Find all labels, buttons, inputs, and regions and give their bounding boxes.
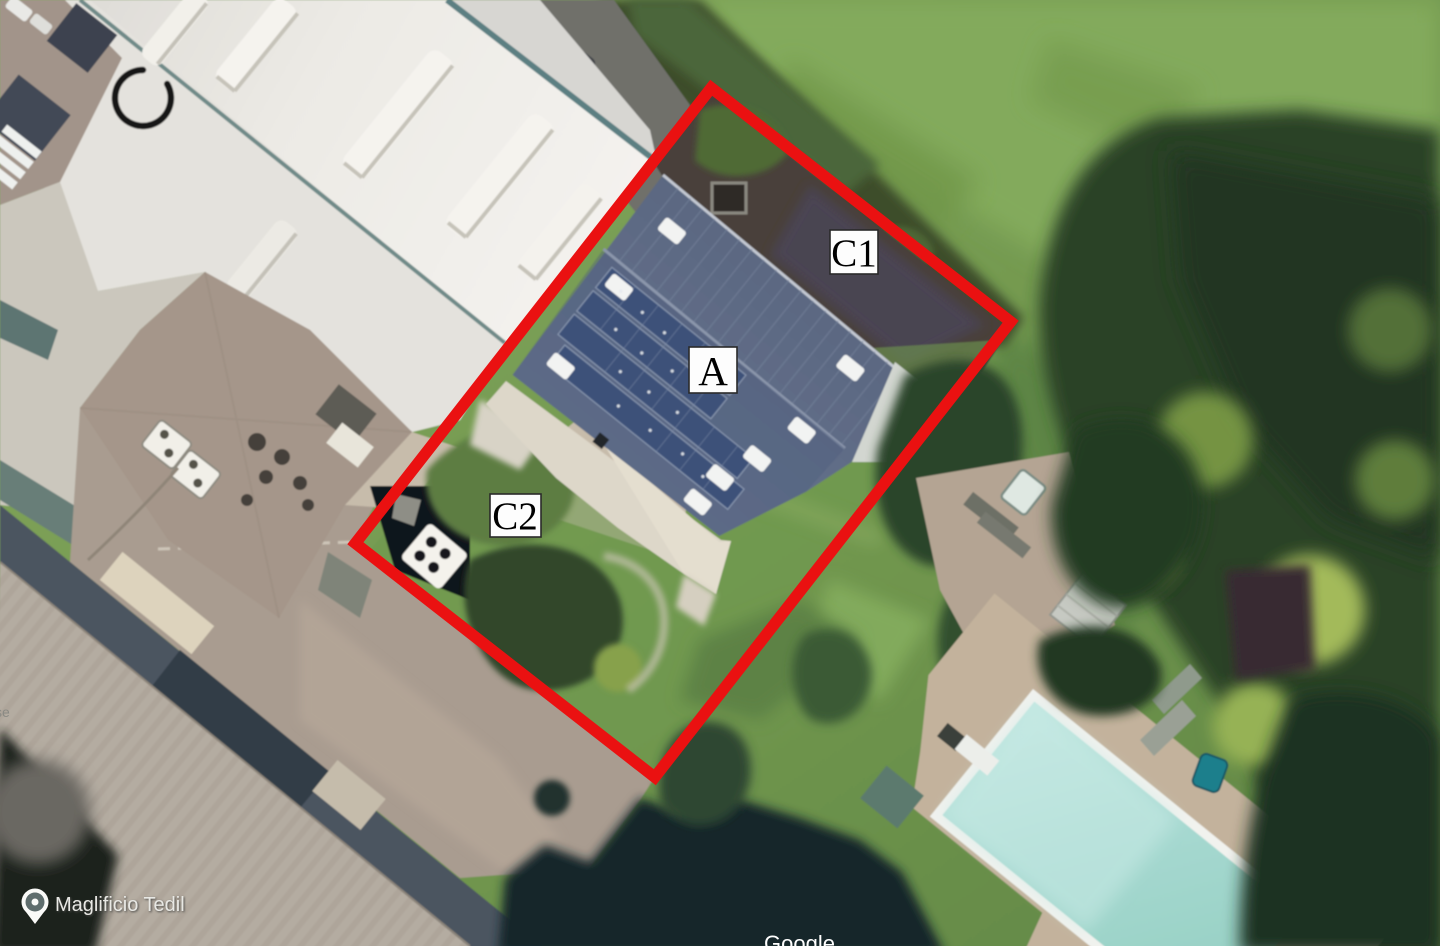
svg-text:Maglificio Tedil: Maglificio Tedil	[55, 894, 185, 916]
svg-text:C1: C1	[831, 232, 877, 275]
svg-text:C2: C2	[492, 495, 538, 538]
svg-text:se: se	[0, 704, 10, 720]
svg-text:Google: Google	[764, 931, 835, 946]
svg-text:A: A	[698, 348, 728, 394]
